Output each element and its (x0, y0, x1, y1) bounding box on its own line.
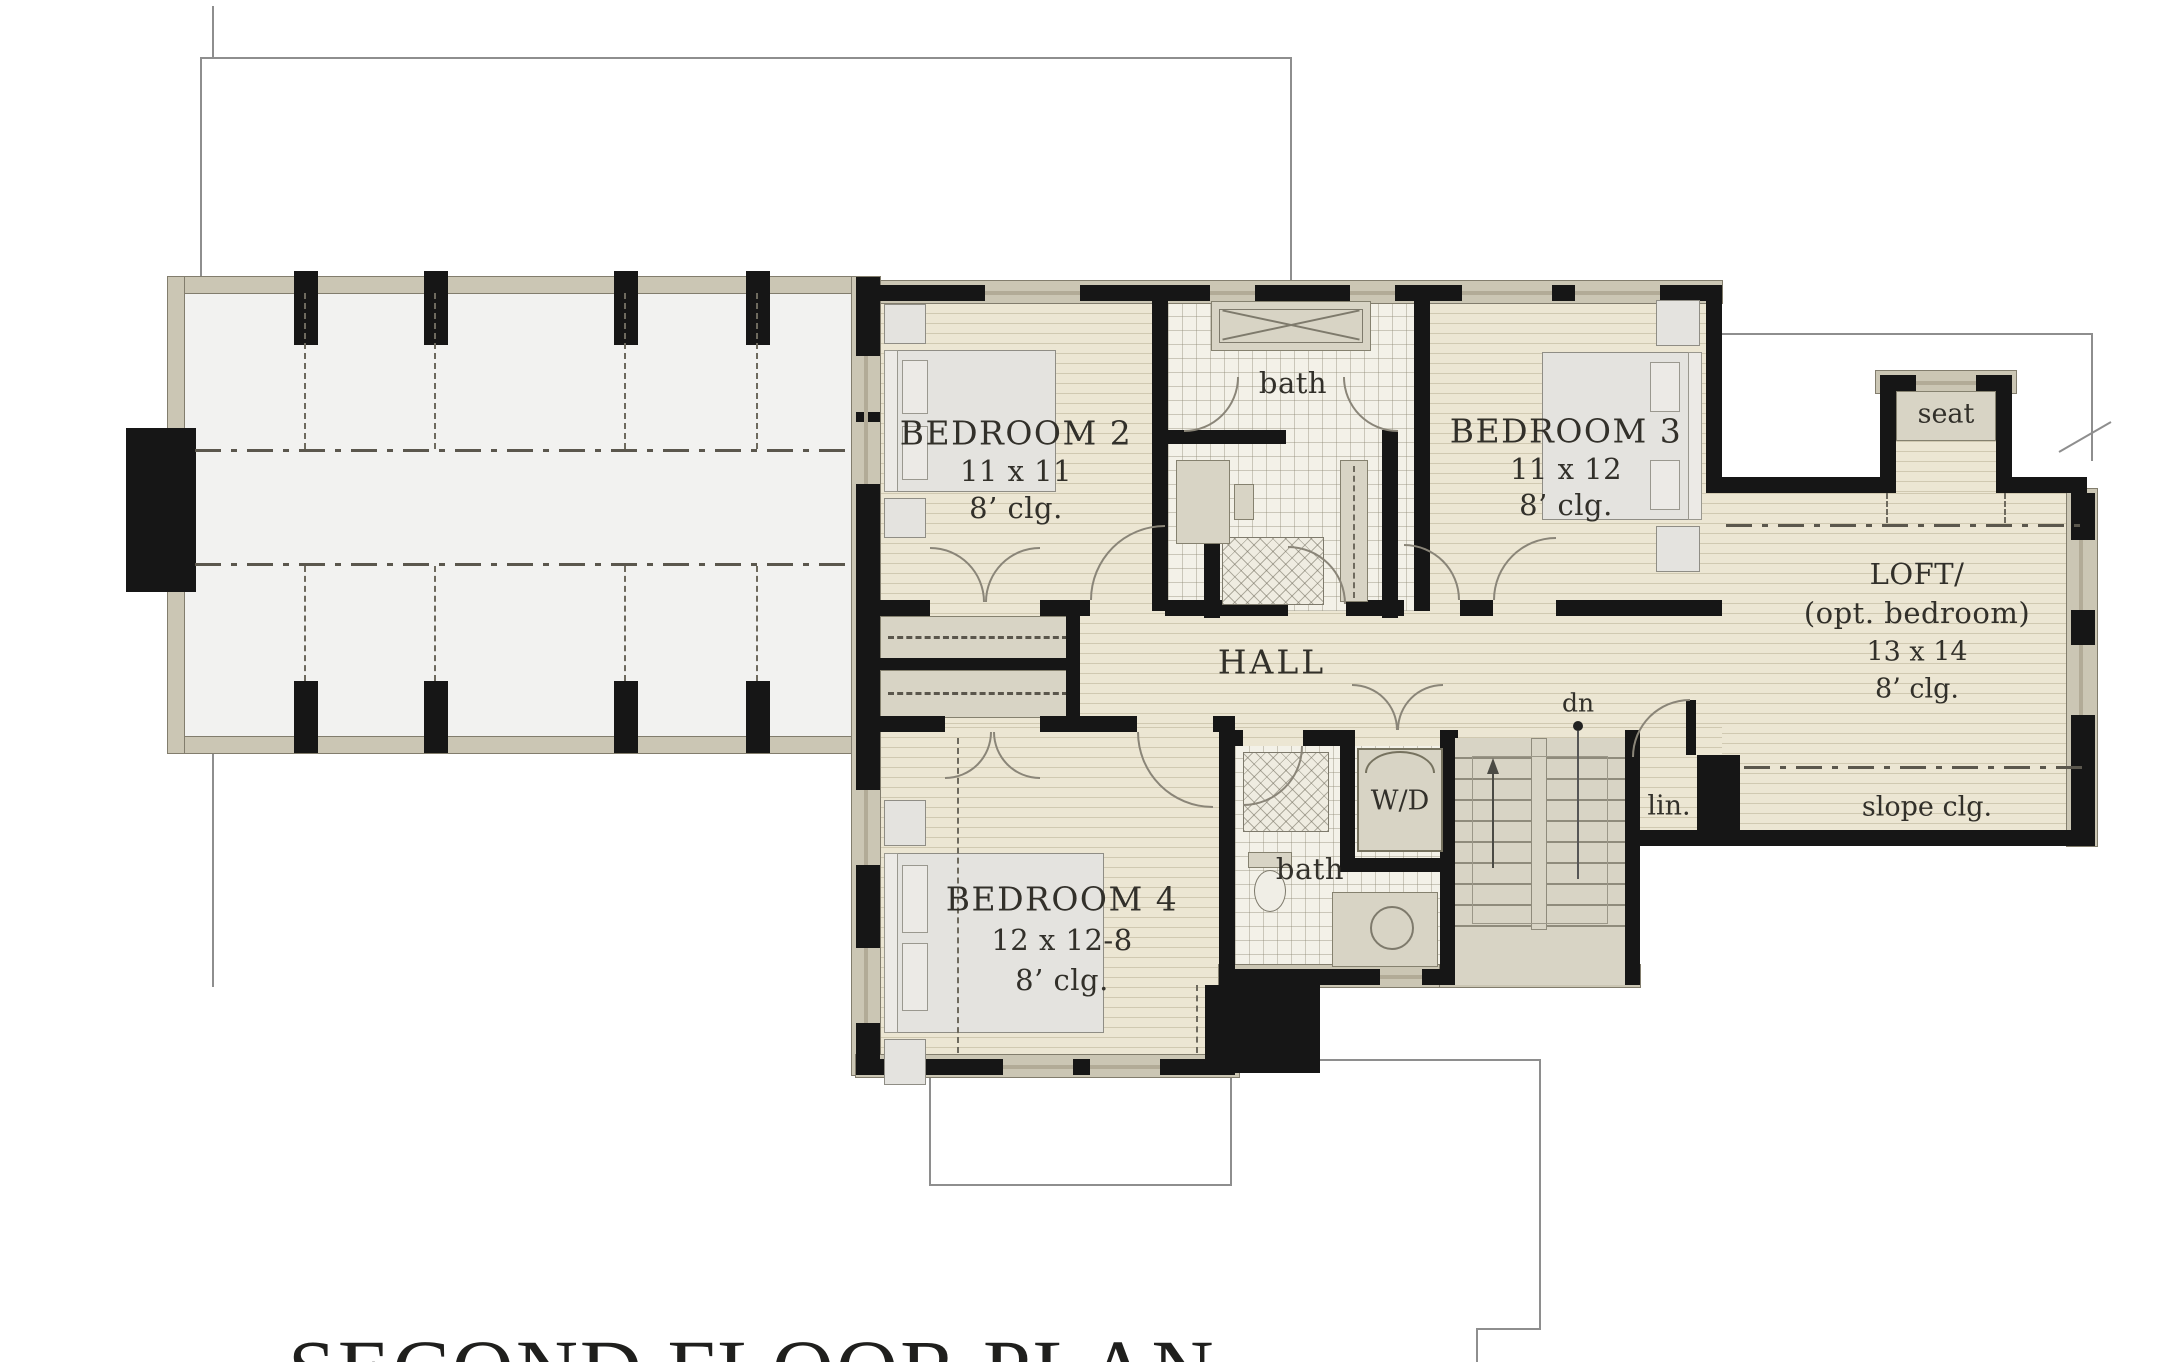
porch-outline (1230, 1075, 1232, 1186)
wall-post (294, 271, 318, 345)
wall-post (614, 681, 638, 753)
room-label-bedroom3: BEDROOM 3 (1450, 412, 1683, 451)
closet-rod (888, 692, 1068, 695)
window-mullion (856, 412, 880, 422)
window (1350, 291, 1395, 295)
nightstand (1656, 526, 1700, 572)
room-ceiling-bedroom3: 8’ clg. (1519, 488, 1613, 522)
wall-segment (856, 277, 880, 356)
wall-segment (864, 716, 945, 732)
room-label-loft: LOFT/ (1870, 557, 1965, 591)
wall-segment (856, 865, 880, 948)
porch-outline (929, 1075, 931, 1186)
wall-segment (864, 600, 930, 616)
window-mullion (1073, 1059, 1090, 1075)
wall-segment (1340, 730, 1355, 872)
window (1003, 1065, 1073, 1069)
nightstand (884, 304, 926, 344)
floor-seat-nook (1896, 441, 1996, 493)
room-label-loft-alt: (opt. bedroom) (1804, 596, 2030, 630)
ceiling-break-line (304, 566, 306, 681)
ceiling-break-line (624, 566, 626, 681)
nightstand (884, 1039, 926, 1085)
garage-roof-outline (200, 57, 1292, 291)
bed-headboard (884, 853, 898, 1033)
room-dims-bedroom3: 11 x 12 (1510, 452, 1622, 486)
wall-segment (1706, 285, 1722, 493)
ceiling-break-line (304, 293, 306, 449)
wall-corner-block (1205, 985, 1320, 1073)
room-label-bath-upper: bath (1259, 366, 1327, 400)
plan-title: SECOND FLOOR PLAN (288, 1320, 1216, 1362)
wall-segment (856, 1059, 1003, 1075)
room-dims-loft: 13 x 14 (1866, 637, 1967, 668)
wall-segment (2071, 493, 2095, 540)
wall-segment (1996, 375, 2012, 493)
stair-up-arrowhead (1487, 758, 1499, 774)
wall-segment (1460, 600, 1493, 616)
wall-segment (2071, 715, 2095, 846)
down-leader-line (1577, 731, 1579, 879)
nightstand (1656, 300, 1700, 346)
ceiling-break-line (434, 566, 436, 681)
room-dims-bedroom4: 12 x 12-8 (991, 923, 1132, 957)
roof-line (1476, 1328, 1541, 1330)
second-floor-plan: BEDROOM 2 11 x 11 8’ clg. BEDROOM 3 11 x… (0, 0, 2160, 1362)
wall-post (424, 271, 448, 345)
wall-segment (1080, 285, 1210, 301)
wall-segment (2012, 477, 2087, 493)
label-linen: lin. (1647, 791, 1690, 822)
window (1575, 291, 1660, 295)
window (864, 356, 868, 484)
window (985, 291, 1080, 295)
room-ceiling-bedroom2: 8’ clg. (969, 491, 1063, 525)
roof-line (212, 6, 214, 57)
wall-segment (1040, 600, 1090, 616)
wall-post (424, 681, 448, 753)
window (1916, 381, 1976, 385)
sink (1370, 906, 1414, 950)
wall-segment (1255, 285, 1350, 301)
wall-post (614, 271, 638, 345)
window (2079, 645, 2083, 715)
label-slope-ceiling: slope clg. (1862, 792, 1992, 823)
ceiling-break-line (624, 293, 626, 449)
wall-segment (1066, 600, 1080, 728)
window (1380, 975, 1422, 979)
window (1090, 1065, 1160, 1069)
label-seat: seat (1918, 399, 1975, 430)
wall-segment (1219, 969, 1380, 985)
wall-post (294, 681, 318, 753)
ceiling-break-line (195, 563, 860, 566)
slope-ceiling-line (1744, 766, 2083, 769)
porch-outline (929, 1184, 1232, 1186)
ceiling-break-line (756, 293, 758, 449)
wall-segment (864, 658, 1080, 670)
roof-line (1539, 1059, 1541, 1330)
label-stairs-down: dn (1562, 689, 1594, 718)
wall-segment (1740, 830, 2087, 846)
label-washer-dryer: W/D (1371, 786, 1430, 817)
chimney (126, 428, 196, 592)
pillow (1650, 362, 1680, 412)
room-label-bedroom2: BEDROOM 2 (900, 414, 1133, 453)
room-dims-bedroom2: 11 x 11 (960, 454, 1072, 488)
window-mullion (2071, 610, 2095, 645)
ceiling-break-line (195, 449, 860, 452)
roof-line (1298, 1059, 1541, 1061)
nightstand (884, 498, 926, 538)
vanity-stool (1234, 484, 1254, 520)
stair-up-arrow (1492, 772, 1494, 868)
window (864, 790, 868, 865)
roof-line (1476, 1328, 1478, 1362)
pillow (902, 865, 928, 933)
wall-segment (1040, 716, 1137, 732)
ceiling-break-line (756, 566, 758, 681)
roof-break-tick (2059, 421, 2112, 453)
wall-segment (1880, 375, 1896, 493)
vanity (1176, 460, 1230, 544)
window (1210, 291, 1255, 295)
wall-segment (1340, 858, 1458, 872)
bed-headboard (884, 350, 898, 492)
closet-rod (888, 636, 1068, 639)
ceiling-break-line (434, 293, 436, 449)
wall-segment (1219, 730, 1235, 985)
wall-segment (1722, 477, 1880, 493)
wall-post (746, 681, 770, 753)
wall-segment (1168, 430, 1286, 444)
room-ceiling-loft: 8’ clg. (1875, 674, 1959, 705)
bed-headboard (1688, 352, 1702, 520)
roof-line (2091, 333, 2093, 461)
down-leader-dot (1573, 721, 1583, 731)
ceiling-break-line (2004, 493, 2006, 523)
wall-segment (1625, 730, 1640, 985)
wall-segment (1556, 600, 1722, 616)
ceiling-break-line (1886, 493, 1888, 523)
window (1462, 291, 1552, 295)
window (864, 948, 868, 1023)
wall-segment (1422, 969, 1440, 985)
closet-rod (1353, 466, 1355, 598)
room-ceiling-bedroom4: 8’ clg. (1015, 963, 1109, 997)
pillow (1650, 460, 1680, 510)
ceiling-break-line (1726, 524, 2083, 527)
wall-segment (1382, 430, 1398, 618)
wall-post (746, 271, 770, 345)
pillow (902, 943, 928, 1011)
wall-segment (1346, 600, 1404, 616)
wall-segment (1880, 375, 1916, 391)
window (2079, 540, 2083, 610)
roof-line (1717, 333, 2093, 335)
room-label-hall: HALL (1218, 643, 1326, 682)
wall-segment (1628, 830, 1740, 846)
wall-segment (1552, 285, 1575, 301)
room-label-bedroom4: BEDROOM 4 (946, 880, 1179, 919)
wall-segment (1976, 375, 2012, 391)
wall-segment (856, 484, 880, 790)
roof-line (212, 751, 214, 987)
room-label-bath-lower: bath (1276, 852, 1344, 886)
ceiling-break-line (1196, 985, 1198, 1053)
nightstand (884, 800, 926, 846)
pillow (902, 360, 928, 414)
